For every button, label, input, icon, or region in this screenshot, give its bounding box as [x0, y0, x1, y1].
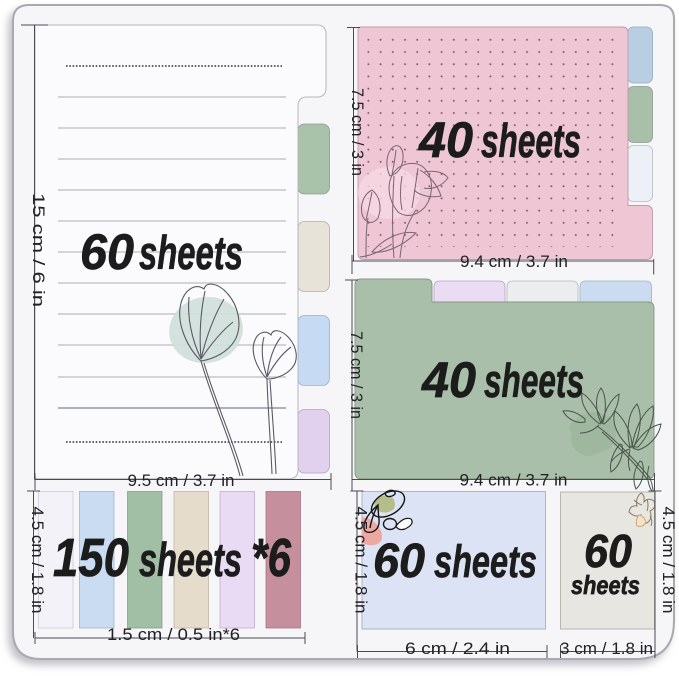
svg-text:7.5 cm / 3 in: 7.5 cm / 3 in — [348, 88, 367, 176]
svg-text:*6: *6 — [251, 528, 292, 588]
svg-text:60: 60 — [80, 224, 134, 280]
svg-text:4.5 cm / 1.8 in: 4.5 cm / 1.8 in — [352, 507, 371, 614]
svg-text:4.5 cm / 1.8 in: 4.5 cm / 1.8 in — [28, 507, 47, 614]
svg-text:40: 40 — [421, 352, 476, 408]
svg-text:sheets: sheets — [434, 536, 537, 587]
svg-text:3 cm / 1.8 in: 3 cm / 1.8 in — [560, 639, 653, 658]
svg-text:40: 40 — [418, 112, 473, 168]
svg-text:9.4 cm / 3.7 in: 9.4 cm / 3.7 in — [460, 471, 568, 490]
svg-text:4.5 cm / 1.8 in: 4.5 cm / 1.8 in — [659, 507, 678, 614]
svg-text:6 cm / 2.4 in: 6 cm / 2.4 in — [405, 639, 510, 658]
svg-text:sheets: sheets — [571, 570, 640, 600]
svg-text:sheets: sheets — [139, 226, 243, 279]
svg-text:150: 150 — [53, 528, 129, 588]
svg-text:1.5 cm / 0.5 in*6: 1.5 cm / 0.5 in*6 — [107, 625, 240, 644]
svg-text:7.5 cm / 3 in: 7.5 cm / 3 in — [347, 331, 366, 419]
svg-text:9.4 cm / 3.7 in: 9.4 cm / 3.7 in — [460, 252, 568, 271]
svg-text:60: 60 — [373, 535, 425, 588]
svg-text:15 cm / 6 in: 15 cm / 6 in — [29, 193, 48, 307]
svg-text:sheets: sheets — [484, 354, 584, 407]
svg-text:9.5 cm / 3.7 in: 9.5 cm / 3.7 in — [128, 471, 235, 490]
svg-text:sheets: sheets — [139, 533, 242, 586]
svg-text:sheets: sheets — [481, 114, 581, 167]
